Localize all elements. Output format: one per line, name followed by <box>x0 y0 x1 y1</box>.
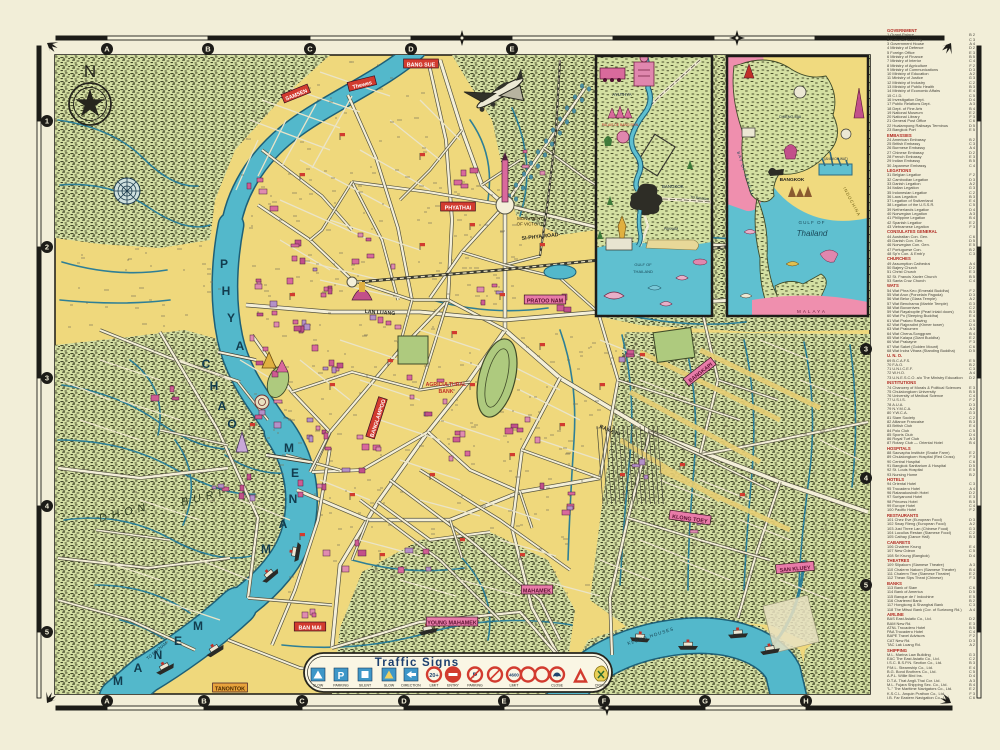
svg-text:BANK: BANK <box>439 389 454 395</box>
svg-text:LIMIT: LIMIT <box>430 684 440 688</box>
svg-text:H: H <box>222 284 231 298</box>
svg-text:SILENT: SILENT <box>359 684 372 688</box>
svg-text:PARKING: PARKING <box>333 684 349 688</box>
svg-text:B: B <box>205 45 211 54</box>
svg-text:CLOSE: CLOSE <box>551 684 564 688</box>
svg-text:B: B <box>201 697 207 706</box>
svg-text:C: C <box>202 357 211 371</box>
svg-text:E: E <box>174 634 182 648</box>
svg-text:MAHAMEK: MAHAMEK <box>523 589 551 595</box>
svg-text:CROSS: CROSS <box>595 684 608 688</box>
svg-text:Thailand: Thailand <box>797 229 828 238</box>
svg-text:G: G <box>702 697 708 706</box>
svg-text:P: P <box>338 671 345 682</box>
svg-text:F: F <box>602 697 607 706</box>
svg-text:1: 1 <box>45 117 49 126</box>
svg-text:CHIENG MAI: CHIENG MAI <box>779 115 802 119</box>
svg-text:N: N <box>84 62 96 81</box>
svg-text:A: A <box>218 399 227 413</box>
svg-text:A: A <box>104 697 110 706</box>
svg-text:GULF OF: GULF OF <box>634 262 652 267</box>
svg-text:PHYATHAI: PHYATHAI <box>445 206 472 212</box>
svg-text:PARKING: PARKING <box>467 684 483 688</box>
svg-text:THAILAND: THAILAND <box>633 269 653 274</box>
svg-text:H: H <box>210 379 219 393</box>
svg-text:20+: 20+ <box>429 673 438 679</box>
svg-text:SLOW: SLOW <box>384 684 395 688</box>
svg-text:O: O <box>227 417 236 431</box>
svg-text:MALAYA: MALAYA <box>797 309 827 314</box>
svg-text:OF VICTORY: OF VICTORY <box>517 222 544 227</box>
svg-text:E: E <box>501 697 506 706</box>
svg-text:5: 5 <box>864 581 868 590</box>
svg-text:ENTRY: ENTRY <box>447 684 459 688</box>
svg-text:Y: Y <box>227 311 235 325</box>
svg-text:E: E <box>509 45 514 54</box>
svg-text:N: N <box>289 492 298 506</box>
svg-text:GULF OF: GULF OF <box>799 220 826 225</box>
svg-text:4600: 4600 <box>509 673 519 678</box>
svg-text:PAKNAM: PAKNAM <box>664 227 678 231</box>
svg-text:3: 3 <box>864 345 868 354</box>
svg-text:LIMIT: LIMIT <box>510 684 520 688</box>
svg-text:A: A <box>134 661 143 675</box>
svg-text:M: M <box>113 674 123 688</box>
svg-text:BANGKOK: BANGKOK <box>662 184 684 189</box>
svg-text:MONUMENT: MONUMENT <box>517 216 543 221</box>
svg-text:AYUTHYA: AYUTHYA <box>612 92 631 97</box>
svg-text:C: C <box>299 697 305 706</box>
svg-text:2: 2 <box>45 243 49 252</box>
svg-text:BAN MAI: BAN MAI <box>298 626 322 632</box>
svg-text:D: D <box>408 45 414 54</box>
svg-text:M: M <box>193 619 203 633</box>
svg-text:A: A <box>236 339 245 353</box>
svg-text:E: E <box>291 466 299 480</box>
svg-text:PRATOO NAM: PRATOO NAM <box>527 299 564 305</box>
svg-text:BANGKOK: BANGKOK <box>780 177 805 183</box>
svg-text:5: 5 <box>45 628 49 637</box>
svg-text:SLOW: SLOW <box>313 684 324 688</box>
svg-text:AGRICULTURAL: AGRICULTURAL <box>426 382 468 388</box>
svg-text:3: 3 <box>45 374 49 383</box>
svg-text:DIRECTION: DIRECTION <box>401 684 421 688</box>
svg-text:M: M <box>261 542 271 556</box>
svg-text:(ANGKOR WAT): (ANGKOR WAT) <box>824 157 848 161</box>
svg-text:D: D <box>401 697 407 706</box>
svg-text:PALAIS DE BANG PAIN: PALAIS DE BANG PAIN <box>602 123 639 127</box>
svg-text:Traffic Signs: Traffic Signs <box>375 657 460 669</box>
svg-text:A: A <box>104 45 110 54</box>
svg-text:YOUNG MAHAMEK: YOUNG MAHAMEK <box>427 621 477 627</box>
svg-text:C: C <box>307 45 313 54</box>
svg-text:BANG SUE: BANG SUE <box>407 63 436 69</box>
svg-text:A: A <box>279 517 288 531</box>
svg-text:H: H <box>803 697 808 706</box>
svg-text:P: P <box>220 257 228 271</box>
svg-text:M: M <box>284 441 294 455</box>
svg-text:TANONTOK: TANONTOK <box>215 687 245 693</box>
